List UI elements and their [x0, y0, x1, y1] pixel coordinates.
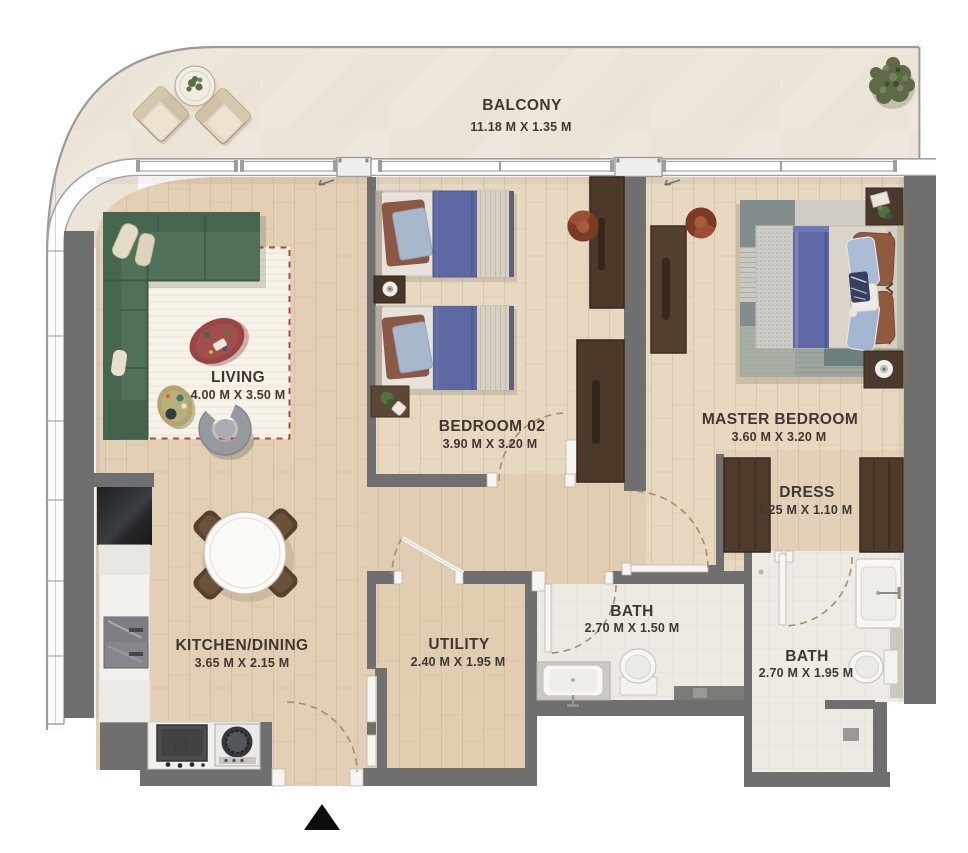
svg-text:4.00 M X 3.50 M: 4.00 M X 3.50 M: [191, 388, 286, 402]
svg-text:11.18 M X 1.35 M: 11.18 M X 1.35 M: [470, 120, 571, 134]
svg-text:3.90 M X 3.20 M: 3.90 M X 3.20 M: [443, 437, 538, 451]
svg-text:DRESS: DRESS: [779, 484, 834, 501]
svg-text:BALCONY: BALCONY: [482, 97, 562, 114]
svg-text:( ): ( ): [174, 740, 189, 751]
svg-text:2.40 M X 1.95 M: 2.40 M X 1.95 M: [411, 655, 506, 669]
svg-text:UTILITY: UTILITY: [428, 636, 490, 653]
svg-text:MASTER BEDROOM: MASTER BEDROOM: [702, 411, 858, 428]
svg-text:2.70 M X 1.50 M: 2.70 M X 1.50 M: [585, 621, 680, 635]
svg-text:BATH: BATH: [610, 603, 654, 620]
svg-text:KITCHEN/DINING: KITCHEN/DINING: [175, 637, 308, 654]
svg-text:1.25 M X 1.10 M: 1.25 M X 1.10 M: [758, 503, 853, 517]
svg-text:BEDROOM 02: BEDROOM 02: [439, 418, 546, 435]
svg-text:2.70 M X 1.95 M: 2.70 M X 1.95 M: [759, 666, 854, 680]
svg-text:LIVING: LIVING: [211, 369, 265, 386]
svg-text:3.60 M X 3.20 M: 3.60 M X 3.20 M: [732, 430, 827, 444]
svg-text:BATH: BATH: [785, 648, 829, 665]
svg-text:3.65 M X 2.15 M: 3.65 M X 2.15 M: [195, 656, 290, 670]
